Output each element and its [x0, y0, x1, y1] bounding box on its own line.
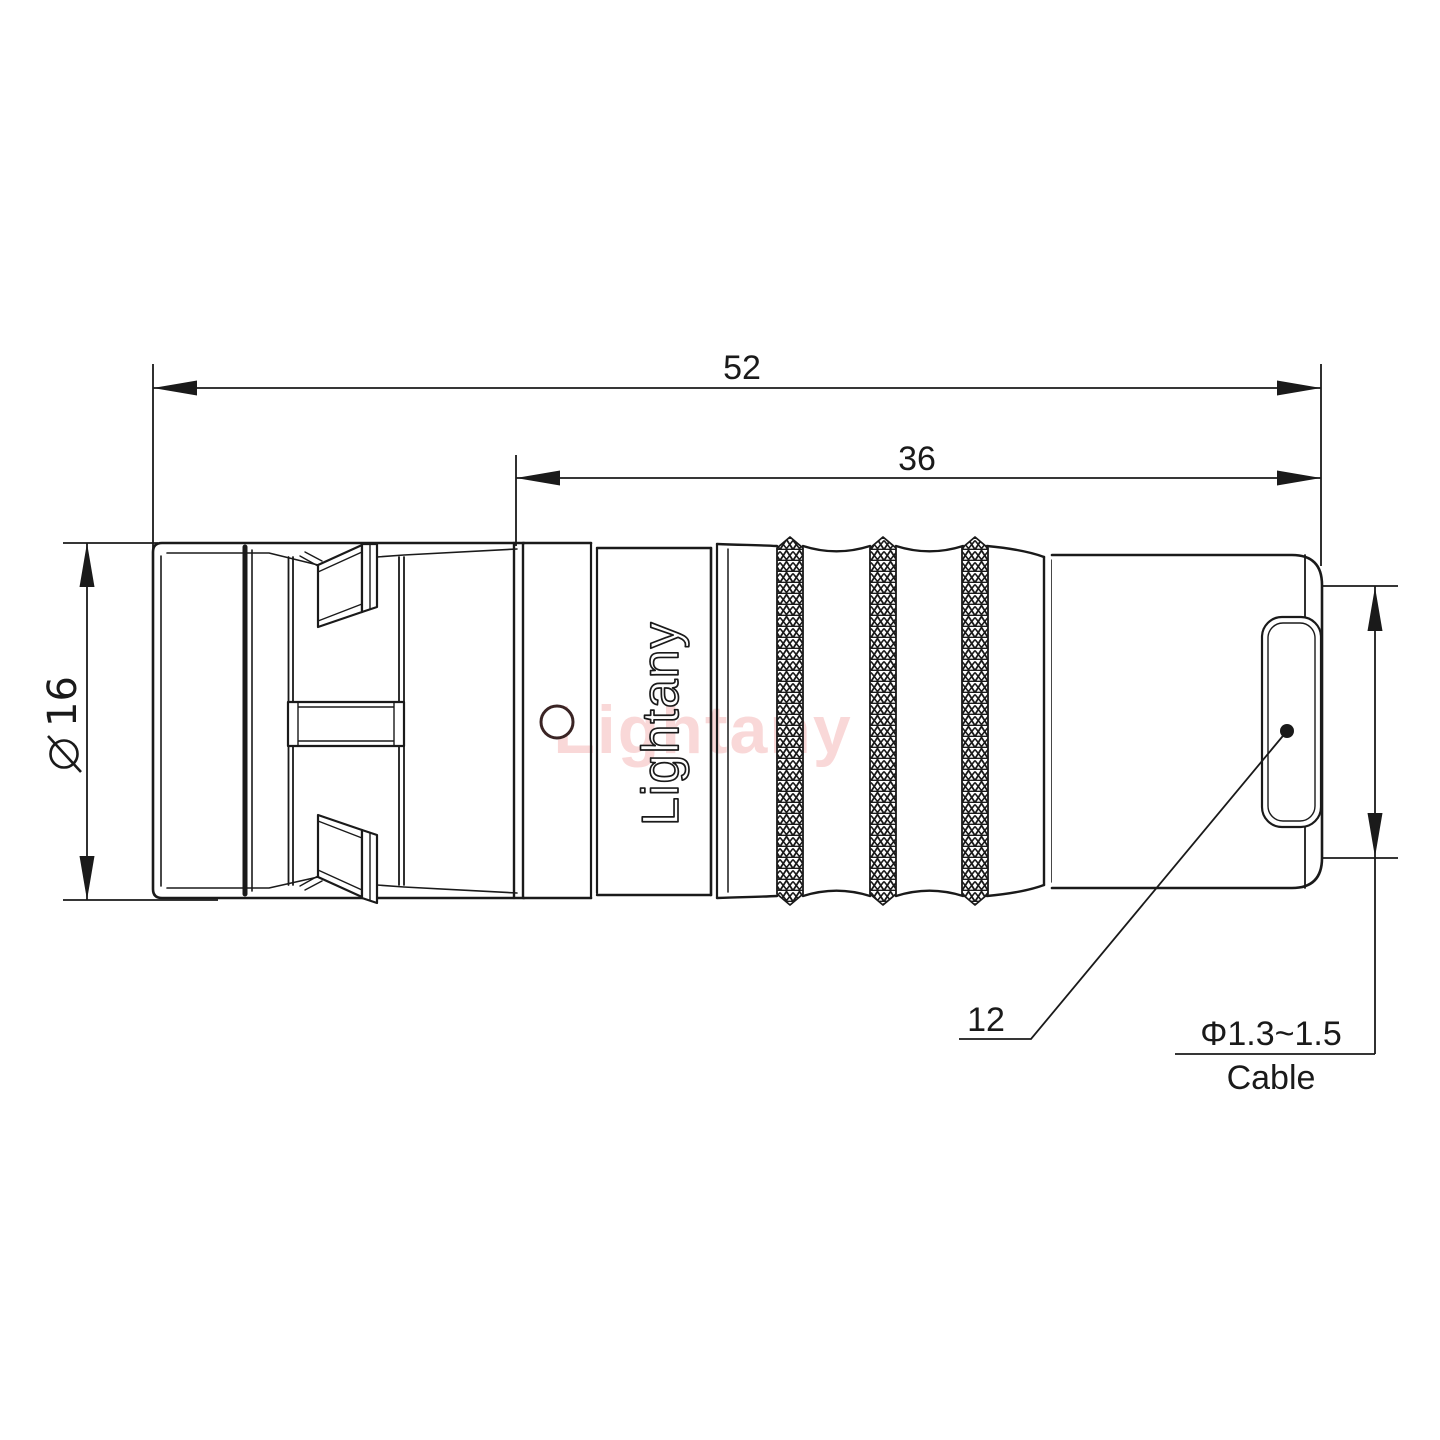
bayonet-middle-bar [288, 702, 404, 746]
watermark-text: Lightany [553, 692, 852, 768]
brand-engraving-text: Lightany [632, 621, 690, 826]
knurl-band [962, 537, 988, 905]
knurl-band [870, 537, 896, 905]
connector-dimension-drawing: Lightany [0, 0, 1440, 1440]
cable-word: Cable [1227, 1059, 1316, 1097]
dimension-value: 16 [40, 676, 86, 727]
bar-outline [288, 702, 404, 746]
cable-entry-window [1262, 617, 1321, 827]
knurl-band [777, 537, 803, 905]
cable-diameter-range: Φ1.3~1.5 [1200, 1015, 1342, 1053]
annotation-value: 12 [967, 1001, 1005, 1039]
dimension-value: 52 [723, 349, 761, 387]
vent-hole [541, 706, 573, 738]
rear-boot [1044, 555, 1322, 888]
technical-drawing-canvas: Lightany [0, 0, 1440, 1440]
dimension-value: 36 [898, 440, 936, 478]
